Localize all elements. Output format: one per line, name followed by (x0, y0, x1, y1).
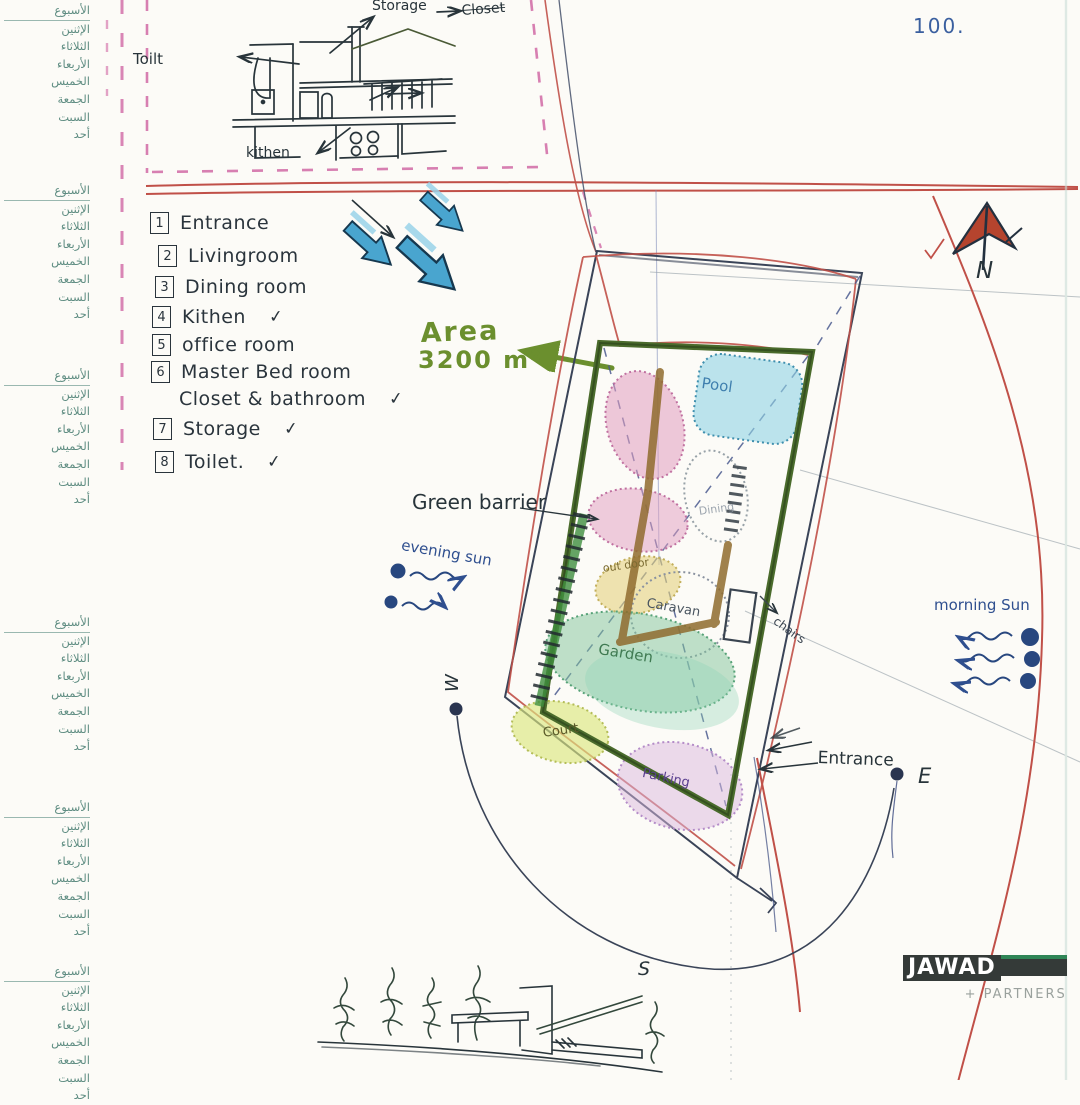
legend-number: 6 (151, 361, 170, 383)
calendar-day: الجمعة (4, 271, 90, 289)
margin-calendar-block: الأسبوعالإثنينالثلاثاءالأربعاءالخميسالجم… (4, 799, 90, 941)
legend-number: 5 (152, 334, 171, 356)
margin-calendar-block: الأسبوعالإثنينالثلاثاءالأربعاءالخميسالجم… (4, 614, 90, 756)
calendar-day: أحد (4, 738, 90, 756)
logo-subtitle: + PARTNERS (903, 987, 1067, 1002)
check-mark: ✓ (266, 451, 282, 472)
calendar-day: السبت (4, 1070, 90, 1088)
morning-sun-icons (956, 629, 1039, 688)
legend-number: 7 (153, 418, 172, 440)
calendar-day: الإثنين (4, 818, 90, 836)
legend-number: 4 (152, 306, 171, 328)
calendar-day: الأربعاء (4, 421, 90, 439)
week-label: الأسبوع (4, 963, 90, 982)
compass-n: N (976, 258, 993, 284)
legend-item-diningroom: 3Dining room (155, 276, 307, 298)
calendar-day: الجمعة (4, 888, 90, 906)
week-label: الأسبوع (4, 367, 90, 386)
check-mark: ✓ (283, 418, 299, 439)
site-plan (505, 251, 862, 913)
calendar-day: السبت (4, 289, 90, 307)
legend-item-masterbed-line2: Closet & bathroom✓ (179, 388, 403, 410)
compass-s: S (638, 958, 650, 980)
scanned-sketch-page: الأسبوعالإثنينالثلاثاءالأربعاءالخميسالجم… (0, 0, 1080, 1080)
calendar-day: الأربعاء (4, 56, 90, 74)
calendar-day: الأربعاء (4, 1017, 90, 1035)
margin-calendar-block: الأسبوعالإثنينالثلاثاءالأربعاءالخميسالجم… (4, 2, 90, 144)
toilet-label: Toilt (133, 50, 163, 68)
calendar-day: الخميس (4, 1034, 90, 1052)
storage-label: Storage (372, 0, 427, 14)
calendar-day: الخميس (4, 73, 90, 91)
calendar-day: السبت (4, 109, 90, 127)
calendar-day: أحد (4, 1087, 90, 1105)
calendar-day: الثلاثاء (4, 218, 90, 236)
week-label: الأسبوع (4, 182, 90, 201)
legend-item-entrance: 1Entrance (150, 212, 269, 234)
logo-bar (1001, 955, 1067, 976)
sketch-linework (0, 0, 1080, 1080)
calendar-day: السبت (4, 906, 90, 924)
calendar-day: الإثنين (4, 386, 90, 404)
projection-lines (545, 0, 659, 565)
sheet-number: 100. (913, 14, 966, 38)
area-value: 3200 m² (418, 346, 543, 374)
compass-e: E (918, 764, 931, 788)
calendar-day: الثلاثاء (4, 650, 90, 668)
calendar-day: الثلاثاء (4, 403, 90, 421)
calendar-day: الجمعة (4, 1052, 90, 1070)
calendar-day: الإثنين (4, 982, 90, 1000)
calendar-day: أحد (4, 126, 90, 144)
calendar-day: الثلاثاء (4, 38, 90, 56)
calendar-day: السبت (4, 474, 90, 492)
calendar-day: أحد (4, 923, 90, 941)
calendar-day: الثلاثاء (4, 835, 90, 853)
kitchen-label: kithen (246, 145, 290, 161)
week-label: الأسبوع (4, 2, 90, 21)
red-divider-lines (146, 182, 1078, 194)
calendar-day: الخميس (4, 685, 90, 703)
calendar-day: الجمعة (4, 91, 90, 109)
legend-number: 8 (155, 451, 174, 473)
calendar-day: الأربعاء (4, 668, 90, 686)
calendar-day: أحد (4, 306, 90, 324)
calendar-day: الثلاثاء (4, 999, 90, 1017)
calendar-day: الجمعة (4, 703, 90, 721)
bottom-elevation-sketch (318, 966, 664, 1072)
calendar-day: الأربعاء (4, 853, 90, 871)
legend-item-toilet: 8Toilet.✓ (155, 451, 282, 473)
legend-item-livingroom: 2Livingroom (158, 245, 299, 267)
legend-number: 2 (158, 245, 177, 267)
entrance-label: Entrance (817, 748, 894, 771)
check-mark: ✓ (388, 388, 404, 409)
legend-item-officeroom: 5office room (152, 334, 295, 356)
logo-brand: JAWAD (903, 955, 1001, 981)
calendar-day: الإثنين (4, 633, 90, 651)
pencil-guides (650, 0, 1080, 1080)
legend-item-storage: 7Storage✓ (153, 418, 298, 440)
calendar-day: الخميس (4, 438, 90, 456)
legend-number: 3 (155, 276, 174, 298)
margin-calendar-block: الأسبوعالإثنينالثلاثاءالأربعاءالخميسالجم… (4, 182, 90, 324)
calendar-day: الخميس (4, 253, 90, 271)
legend-item-masterbed: 6Master Bed room (151, 361, 351, 383)
calendar-day: الإثنين (4, 21, 90, 39)
check-mark: ✓ (268, 306, 284, 327)
wind-arrows (334, 183, 472, 303)
compass-w: W (442, 674, 463, 692)
legend-number: 1 (150, 212, 169, 234)
evening-sun-icons (386, 565, 463, 610)
calendar-day: السبت (4, 721, 90, 739)
morning-sun-label: morning Sun (934, 596, 1030, 614)
green-barrier-label: Green barrier (412, 490, 546, 514)
calendar-day: الإثنين (4, 201, 90, 219)
calendar-day: الأربعاء (4, 236, 90, 254)
margin-calendar-block: الأسبوعالإثنينالثلاثاءالأربعاءالخميسالجم… (4, 963, 90, 1105)
closet-label: Closet (461, 0, 506, 19)
week-label: الأسبوع (4, 614, 90, 633)
calendar-day: أحد (4, 491, 90, 509)
legend-item-kitchen: 4Kithen✓ (152, 306, 283, 328)
calendar-day: الخميس (4, 870, 90, 888)
section-sketch (233, 11, 459, 160)
jawad-partners-logo: JAWAD + PARTNERS (903, 955, 1067, 1002)
margin-calendar-block: الأسبوعالإثنينالثلاثاءالأربعاءالخميسالجم… (4, 367, 90, 509)
week-label: الأسبوع (4, 799, 90, 818)
area-title: Area (420, 315, 500, 349)
calendar-day: الجمعة (4, 456, 90, 474)
